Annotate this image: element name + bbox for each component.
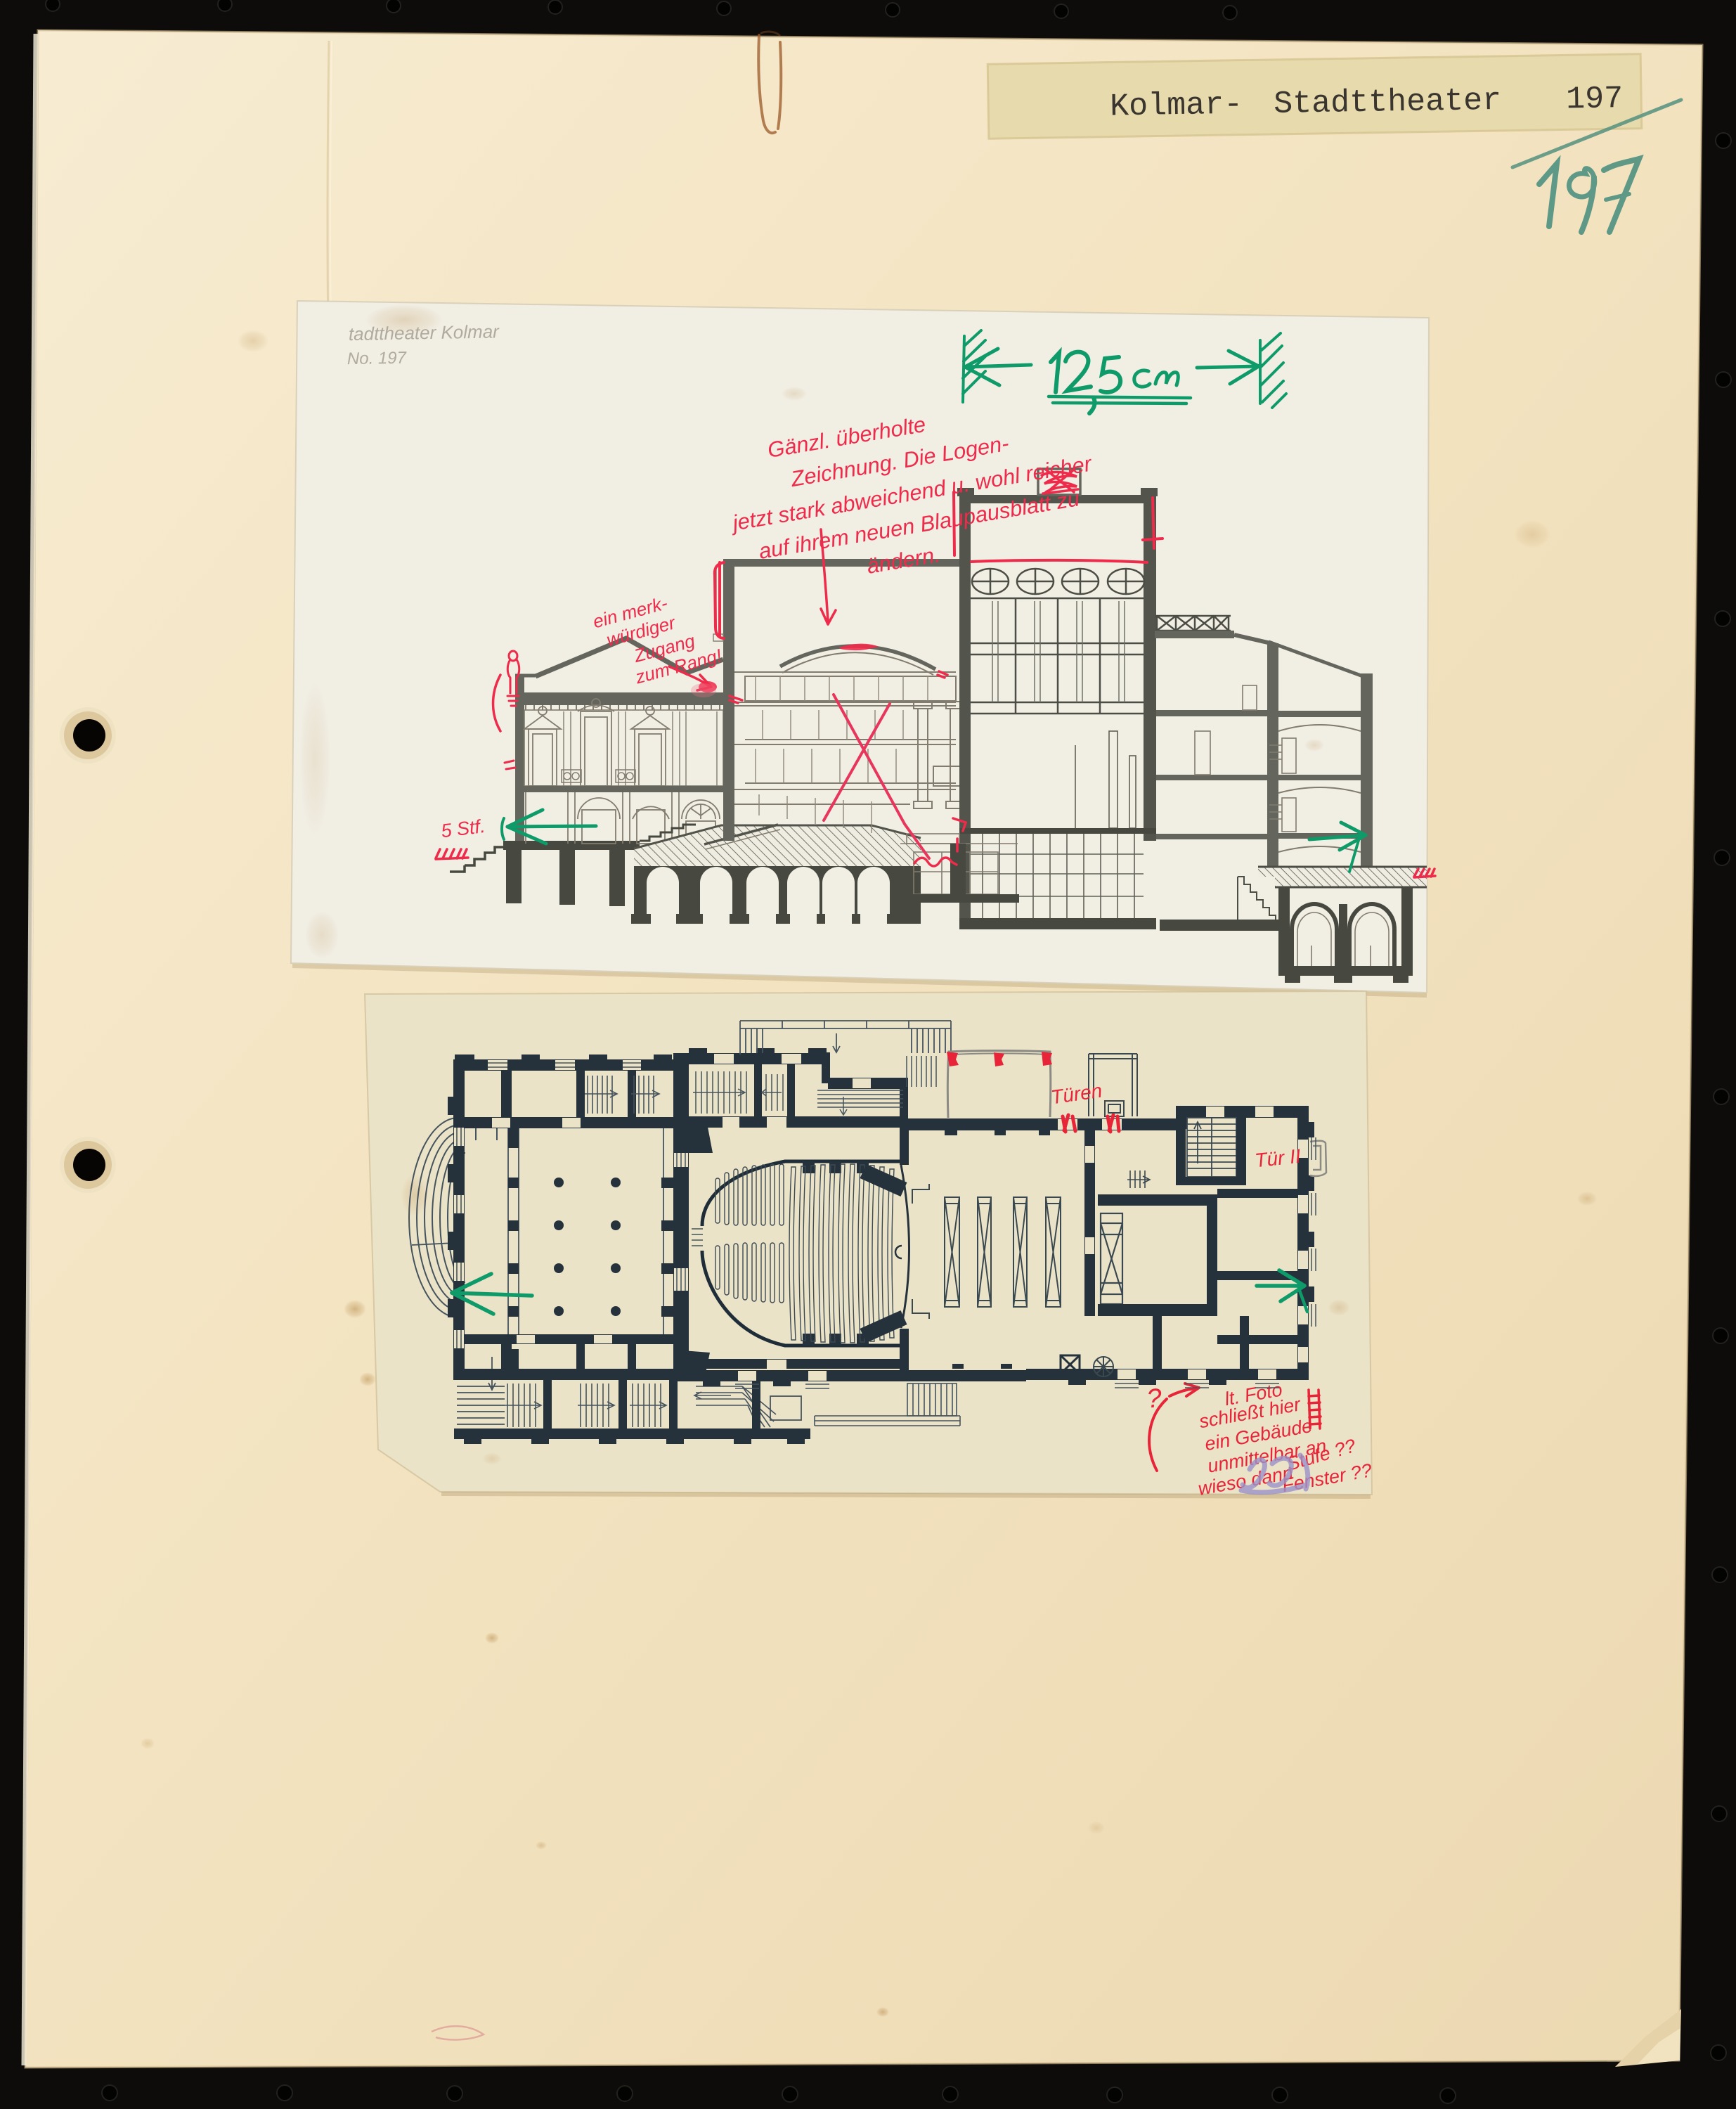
svg-text:?: ? xyxy=(1146,1384,1163,1414)
